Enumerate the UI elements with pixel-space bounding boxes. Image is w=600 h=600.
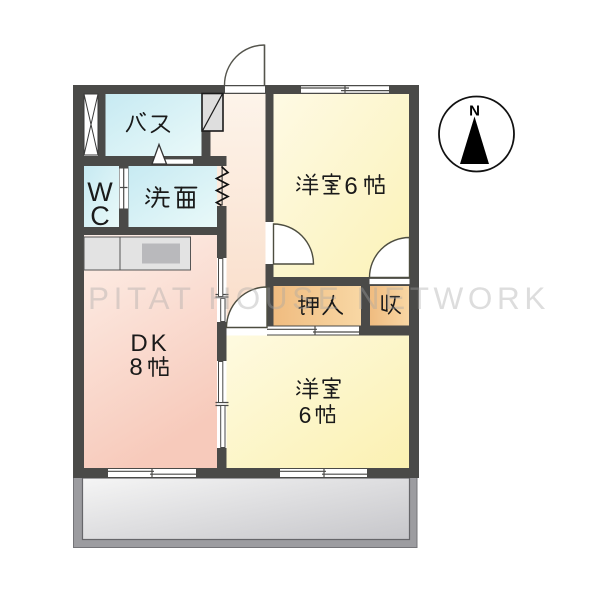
svg-text:PITAT HOUSE NETWORK: PITAT HOUSE NETWORK xyxy=(88,280,550,316)
svg-text:6: 6 xyxy=(344,173,357,200)
svg-text:N: N xyxy=(469,103,480,120)
svg-text:8: 8 xyxy=(129,354,142,381)
svg-text:DK: DK xyxy=(130,330,169,357)
svg-text:6: 6 xyxy=(299,402,312,428)
svg-text:C: C xyxy=(90,201,110,231)
